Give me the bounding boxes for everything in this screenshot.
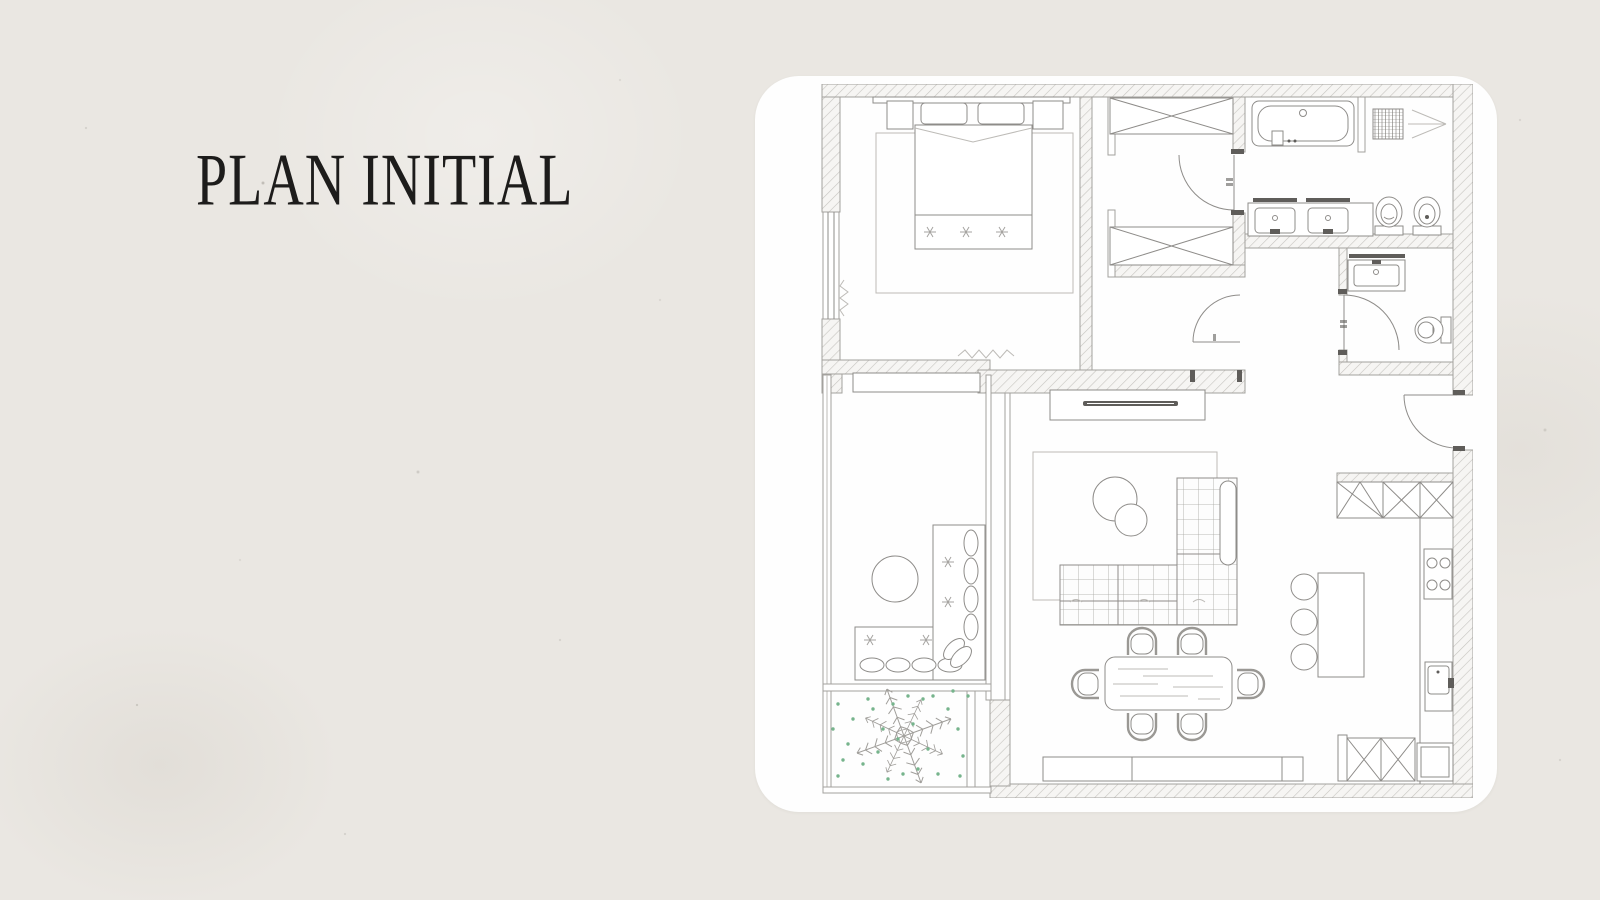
lounge-office xyxy=(853,373,985,680)
hallway-door xyxy=(1190,295,1242,382)
bedroom xyxy=(840,97,1073,358)
bathroom xyxy=(1248,101,1446,236)
lounge-glazing xyxy=(823,375,831,787)
balcony-rail xyxy=(823,684,991,793)
balcony-plant xyxy=(831,687,969,786)
wc-mirror xyxy=(1349,254,1405,258)
living-room xyxy=(1033,390,1303,781)
coffee-tables xyxy=(1093,477,1147,536)
wc-washbasin xyxy=(1348,260,1405,291)
shower xyxy=(1373,109,1446,139)
walk-in-closet xyxy=(1110,98,1233,265)
closet-door xyxy=(1179,149,1244,215)
windows xyxy=(823,212,991,793)
wc-door xyxy=(1338,289,1399,355)
kitchen-sink xyxy=(1425,662,1454,711)
plant-leaf-dots xyxy=(831,689,969,780)
doors xyxy=(1179,149,1465,451)
kitchen-upper-cabinets xyxy=(1337,482,1453,518)
corner-sofa xyxy=(1060,478,1237,625)
pillow xyxy=(978,103,1024,124)
double-bed xyxy=(915,125,1032,249)
floor-plan-drawing xyxy=(808,84,1473,798)
slide-background: PLAN INITIAL xyxy=(0,0,1600,900)
floor-plan-card xyxy=(755,76,1497,812)
cooktop xyxy=(1424,549,1452,599)
balcony xyxy=(831,687,969,786)
bar-stools xyxy=(1291,574,1317,670)
sideboard xyxy=(1043,757,1303,781)
nightstand-right xyxy=(1033,101,1063,129)
tv-console xyxy=(1050,390,1205,420)
console-table xyxy=(853,373,980,392)
fridge-cabinet xyxy=(1338,735,1453,781)
wardrobe-top xyxy=(1110,98,1233,134)
entrance-door xyxy=(1404,390,1465,451)
wc-toilet xyxy=(1415,317,1451,343)
double-washbasin xyxy=(1248,198,1373,236)
pillow xyxy=(921,103,967,124)
toilet xyxy=(1375,197,1403,235)
bedroom-window xyxy=(823,212,839,319)
kitchen-island xyxy=(1318,573,1364,677)
wardrobe-bottom xyxy=(1110,227,1233,265)
curtain-symbol xyxy=(958,350,1014,358)
radiator-symbol xyxy=(840,280,848,316)
kitchen xyxy=(1291,482,1454,784)
bidet xyxy=(1413,197,1441,235)
bathtub xyxy=(1252,101,1354,146)
dining-table xyxy=(1105,657,1232,710)
slide-title: PLAN INITIAL xyxy=(196,144,573,218)
round-side-table xyxy=(872,556,918,602)
dining-set xyxy=(1072,628,1264,740)
lounge-sofa xyxy=(855,525,985,680)
nightstand-left xyxy=(887,101,913,129)
